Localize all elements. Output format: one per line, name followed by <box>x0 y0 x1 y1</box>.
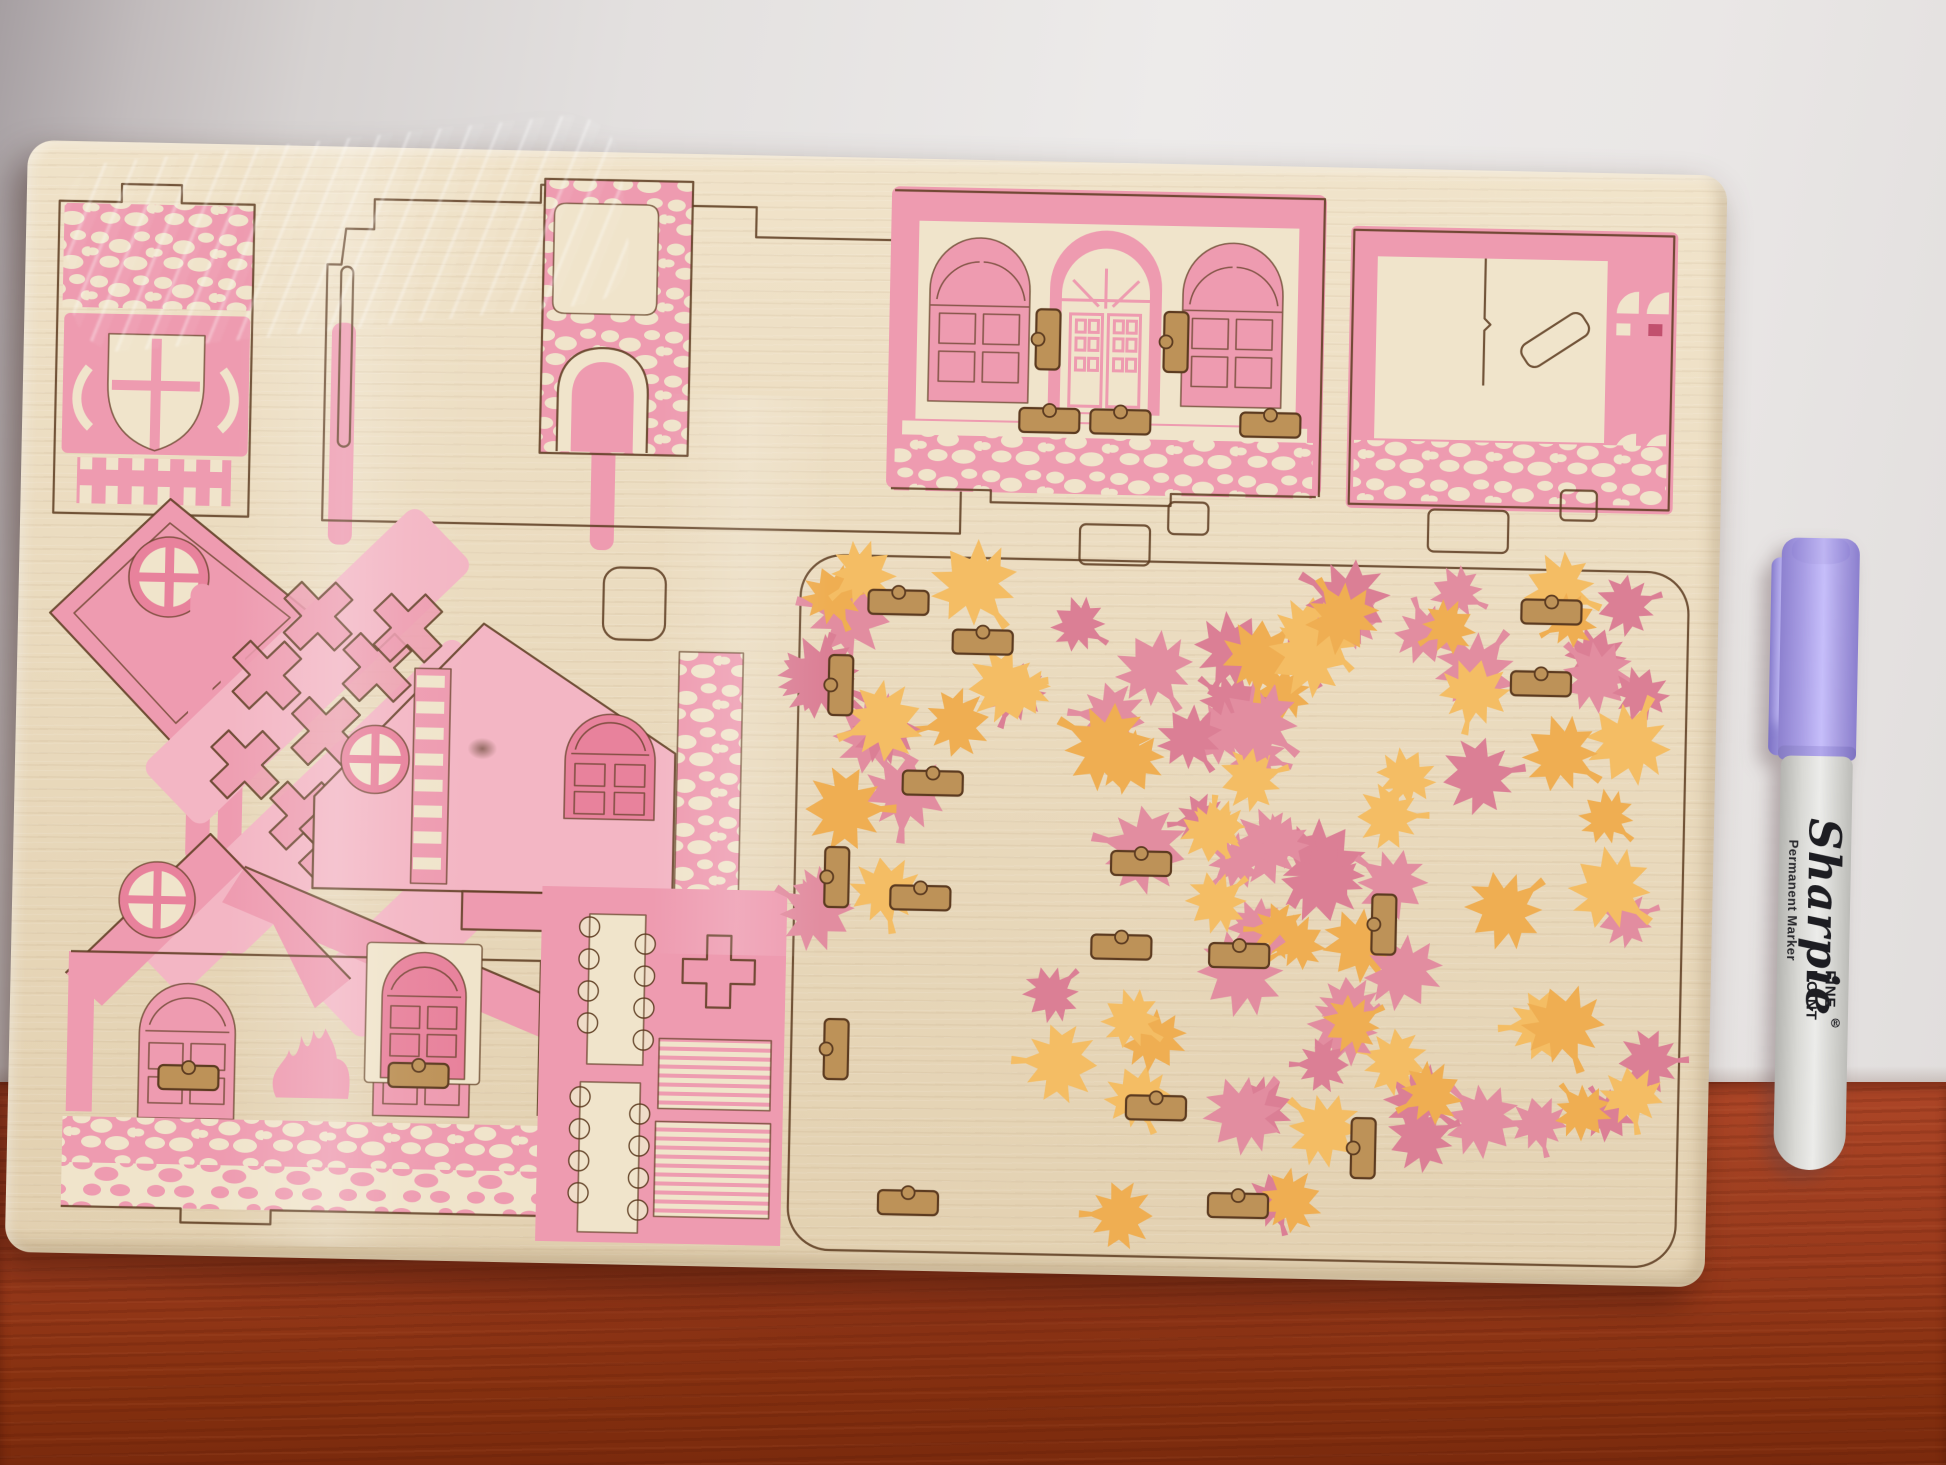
cut-slot <box>952 625 1013 655</box>
photo-scene: Sharpie® Permanent Marker FINE POINT <box>0 0 1946 1465</box>
cut-slot <box>1091 930 1152 960</box>
arch-mantel-piece <box>540 179 694 456</box>
cut-slot <box>868 585 929 615</box>
maple-leaf <box>1590 566 1670 642</box>
marker-body: Sharpie® Permanent Marker FINE POINT <box>1773 755 1853 1170</box>
cut-slot <box>902 766 963 796</box>
cut-slot <box>1511 667 1572 697</box>
maple-leaf <box>1189 1052 1306 1169</box>
sharpie-marker: Sharpie® Permanent Marker FINE POINT <box>1768 537 1862 1170</box>
maple-leaf <box>910 684 994 762</box>
lasercut-puzzle-board <box>5 140 1728 1287</box>
maple-leaf <box>859 749 950 848</box>
cut-slot <box>890 881 951 911</box>
maple-leaf <box>1506 1092 1574 1164</box>
maple-leaf <box>1013 950 1097 1033</box>
maple-leaf <box>1077 1180 1154 1251</box>
cut-slot <box>820 847 850 908</box>
maple-leaf <box>1008 1020 1101 1105</box>
maple-leaf <box>1569 779 1651 860</box>
cut-slot <box>878 1186 939 1216</box>
board-graphic <box>5 140 1728 1287</box>
side-wall-panel <box>1345 226 1679 557</box>
cut-slot <box>819 1019 849 1080</box>
window-wall-panel <box>884 186 1327 569</box>
marker-tip-size-text: FINE POINT <box>1800 970 1838 1022</box>
chimney-crest-piece <box>53 183 255 517</box>
maple-leaf <box>1452 850 1567 963</box>
marker-cap <box>1778 537 1860 756</box>
marker-subtext: Permanent Marker <box>1784 840 1801 962</box>
maple-leaf <box>1042 587 1123 666</box>
maple-leaf <box>1437 731 1531 818</box>
trim-pieces-zone <box>535 886 787 1246</box>
cut-slot <box>1126 1091 1187 1121</box>
